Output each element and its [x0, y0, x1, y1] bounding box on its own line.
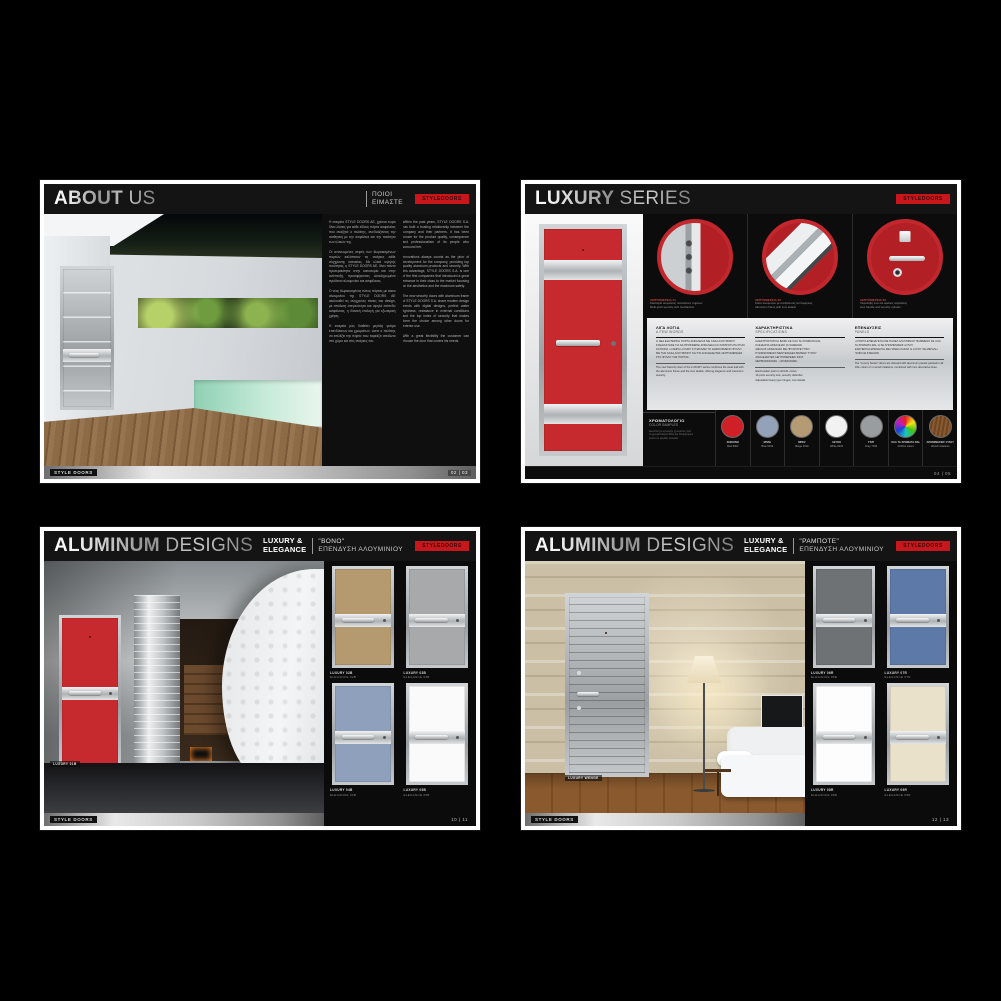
swatch-caption: ΚΟΚΚΙΝΟRed 3002 — [716, 441, 750, 448]
brand-logo: STYLEDOORS — [415, 194, 469, 204]
footer-dark-section: 10 | 11 — [324, 813, 476, 826]
rule — [656, 363, 745, 364]
lock-bolts — [661, 223, 729, 291]
brand-logo: STYLEDOORS — [896, 194, 950, 204]
door-handle — [69, 353, 99, 357]
inox-band — [816, 731, 872, 744]
door-thumbnail: LUXURY 04BELEGANCE 04B — [329, 683, 398, 800]
peephole — [89, 636, 91, 638]
swatch-caption: ΜΠΛΕBlue 5014 — [751, 441, 785, 448]
inox-band-bottom — [544, 404, 622, 424]
red-aluminum-door — [59, 615, 121, 767]
door-slab — [816, 686, 872, 782]
page-content: LUXURY WENGE LUXURY 06RELEGANCE 06R — [525, 561, 957, 813]
side-table-leg — [717, 772, 719, 796]
lock-cylinder — [109, 692, 112, 695]
thumb-door-blue — [332, 683, 394, 785]
luxury-right-column: ΛΕΠΤΟΜΕΡΕΙΑ 01 Κλειδαριά ασφαλείας πολλα… — [643, 214, 957, 466]
door-slab — [569, 597, 645, 773]
thumb-door-cream — [887, 683, 949, 785]
spread-luxury-series[interactable]: LUXURY SERIES STYLEDOORS — [521, 180, 961, 483]
lock-cylinder — [383, 619, 386, 622]
spec-notes: Electrostatic paint in all RAL colors 16… — [755, 370, 844, 383]
thumb-door-darkgrey — [813, 566, 875, 668]
spec-col-specifications: ΧΑΡΑΚΤΗΡΙΣΤΙΚΑ SPECIFICATIONS ΗΛΕΚΤΡΟΣΤΑ… — [755, 325, 844, 405]
detail-cell-frame: ΛΕΠΤΟΜΕΡΕΙΑ 02 Κάσα αλουμινίου με ανοξεί… — [747, 214, 852, 318]
swatch-caption: ΟΛΑ ΤΑ ΧΡΩΜΑΤΑ RALAll RAL colors — [889, 441, 923, 448]
thumbnail-caption: LUXURY 08RELEGANCE 08R — [811, 788, 878, 796]
catalog-canvas: ABOUT US ΠΟΙΟΙ ΕΙΜΑΣΤΕ STYLEDOORS — [0, 0, 1001, 1001]
door-slab — [63, 269, 111, 407]
door-slab — [409, 686, 465, 782]
lock-cylinder — [611, 341, 616, 346]
thumb-label2: ELEGANCE 08R — [811, 793, 878, 797]
color-swatch-beige: ΜΠΕΖBeige 1019 — [784, 410, 819, 466]
page-header: ABOUT US ΠΟΙΟΙ ΕΙΜΑΣΤΕ STYLEDOORS — [44, 184, 476, 214]
door-thumbnail: LUXURY 03BELEGANCE 03B — [403, 566, 472, 683]
page-footer: STYLE DOORS 02 | 03 — [44, 466, 476, 479]
page-title: ABOUT US — [54, 188, 156, 210]
rule — [855, 359, 944, 360]
thumb-label2: ELEGANCE 05B — [404, 793, 471, 797]
color-samples-label: ΧΡΩΜΑΤΟΛΟΓΙΟ COLOR SAMPLES Δυνατότητα επ… — [643, 412, 715, 466]
handle-lever — [889, 256, 925, 261]
about-text-panel: Η εταιρεία STYLE DOORS ΑΕ, χρόνια τώρα δ… — [322, 214, 476, 466]
footer-bar: STYLE DOORS — [525, 813, 805, 826]
thumbnail-caption: LUXURY 05BELEGANCE 05B — [404, 788, 471, 796]
thumb-door-white — [813, 683, 875, 785]
thumb-door-grey — [406, 566, 468, 668]
spec-notes: The "Luxury Series" doors are dressed wi… — [855, 362, 944, 370]
title-light: US — [129, 188, 156, 209]
thumb-label2: ELEGANCE 03B — [404, 675, 471, 679]
page-footer: STYLE DOORS 12 | 13 — [525, 813, 957, 826]
badge-line2: ELEGANCE — [263, 546, 306, 555]
peephole-cover — [900, 231, 911, 242]
footer-bar: STYLE DOORS 02 | 03 — [44, 466, 476, 479]
door-slab — [890, 569, 946, 665]
thumbnail-caption: LUXURY 06RELEGANCE 06R — [811, 671, 878, 679]
lock-cylinder — [864, 736, 867, 739]
thumb-label2: ELEGANCE 09R — [885, 793, 952, 797]
spec-col-words: ΛΙΓΑ ΛΟΓΙΑ A FEW WORDS Η ΝΕΑ ΕΞΩΤΕΡΙΚΗ Π… — [656, 325, 745, 405]
page-header: LUXURY SERIES STYLEDOORS — [525, 184, 957, 214]
spec-panel: ΛΙΓΑ ΛΟΓΙΑ A FEW WORDS Η ΝΕΑ ΕΞΩΤΕΡΙΚΗ Π… — [647, 318, 953, 410]
subtitle-line2: ΕΙΜΑΣΤΕ — [372, 199, 403, 207]
door-handle — [69, 691, 101, 695]
swatch-circle — [756, 415, 779, 438]
detail-caption: ΛΕΠΤΟΜΕΡΕΙΑ 02 Κάσα αλουμινίου με ανοξεί… — [748, 298, 852, 310]
title-strong: ALUMINUM — [535, 535, 641, 556]
color-swatch-wood: ΑΠΟΜΙΜΗΣΕΙΣ ΞΥΛΟΥWood imitations — [922, 410, 957, 466]
swatch-name-en: Blue 5014 — [753, 445, 783, 449]
color-swatch-grey: ΓΚΡΙGrey 7040 — [853, 410, 888, 466]
wood-aluminum-door — [565, 593, 649, 777]
lock-cylinder — [937, 736, 940, 739]
luxury-elegance-badge: LUXURY & ELEGANCE — [744, 537, 787, 554]
title-light: DESIGNS — [646, 535, 734, 556]
door-slab — [335, 686, 391, 782]
title-light: DESIGNS — [165, 535, 253, 556]
inox-band — [816, 614, 872, 627]
spec-heading-en: PANELS — [855, 330, 944, 334]
footer-brand: STYLE DOORS — [50, 469, 97, 476]
thumb-label2: ELEGANCE 02B — [330, 675, 397, 679]
inox-band — [890, 731, 946, 744]
door-thumbnail: LUXURY 02BELEGANCE 02B — [329, 566, 398, 683]
page-number: 02 | 03 — [448, 470, 471, 476]
brand-logo: STYLEDOORS — [896, 541, 950, 551]
inox-band-top — [544, 260, 622, 280]
subtitle-line2: ΕΠΕΝΔΥΣΗ ΑΛΟΥΜΙΝΙΟΥ — [318, 546, 403, 554]
thumb-door-white — [406, 683, 468, 785]
swatch-caption: ΛΕΥΚΟWhite 9016 — [820, 441, 854, 448]
inox-band — [409, 614, 465, 627]
rule — [855, 337, 944, 338]
door-handle — [415, 735, 447, 739]
red-security-door — [539, 224, 627, 456]
swatch-circle — [894, 415, 917, 438]
page-number: 10 | 11 — [448, 817, 471, 823]
detail-circles-row: ΛΕΠΤΟΜΕΡΕΙΑ 01 Κλειδαριά ασφαλείας πολλα… — [643, 214, 957, 318]
subtitle-line1: "ΡΑΜΠΟΤΕ" — [799, 538, 884, 546]
footer-brand: STYLE DOORS — [531, 816, 578, 823]
about-text-english: Within the past years, STYLE DOORS S.A. … — [403, 220, 470, 460]
thumb-label2: ELEGANCE 06R — [811, 675, 878, 679]
color-swatch-white: ΛΕΥΚΟWhite 9016 — [819, 410, 854, 466]
page-content: ΛΕΠΤΟΜΕΡΕΙΑ 01 Κλειδαριά ασφαλείας πολλα… — [525, 214, 957, 466]
thumbnail-caption: LUXURY 04BELEGANCE 04B — [330, 788, 397, 796]
spread-aluminum-rabote[interactable]: ALUMINUM DESIGNS LUXURY & ELEGANCE "ΡΑΜΠ… — [521, 527, 961, 830]
photo-caption: LUXURY 01B — [50, 761, 80, 767]
page-content: Η εταιρεία STYLE DOORS ΑΕ, χρόνια τώρα δ… — [44, 214, 476, 466]
color-swatch-red: ΚΟΚΚΙΝΟRed 3002 — [715, 410, 750, 466]
door-thumbnail: LUXURY 06RELEGANCE 06R — [810, 566, 879, 683]
inox-band — [335, 731, 391, 744]
page-title: LUXURY SERIES — [535, 188, 691, 210]
swatch-name-en: Red 3002 — [718, 445, 748, 449]
door-handle — [415, 618, 447, 622]
door-thumbnails-panel: LUXURY 06RELEGANCE 06R LUXURY 07RELEGANC… — [805, 561, 957, 813]
badge-line2: ELEGANCE — [744, 546, 787, 555]
thumb-door-beige — [332, 566, 394, 668]
handle-detail-photo — [867, 219, 943, 295]
title-strong: ALUMINUM — [54, 535, 160, 556]
detail-line2: Multi-point security lock mechanism — [650, 306, 740, 310]
swatch-caption: ΑΠΟΜΙΜΗΣΕΙΣ ΞΥΛΟΥWood imitations — [923, 441, 957, 448]
page-subtitle: "ΒΟΝΟ" ΕΠΕΝΔΥΣΗ ΑΛΟΥΜΙΝΙΟΥ — [312, 538, 403, 554]
door-slab — [816, 569, 872, 665]
colors-note: Δυνατότητα επιλογής χρώματος από το χρωμ… — [649, 430, 709, 442]
peephole — [582, 249, 584, 251]
page-title: ALUMINUM DESIGNS — [54, 535, 253, 557]
photo-caption: LUXURY WENGE — [565, 775, 602, 781]
lock-rosette — [893, 268, 902, 277]
swatch-circle — [825, 415, 848, 438]
door-thumbnail: LUXURY 05BELEGANCE 05B — [403, 683, 472, 800]
swatch-name-en: Wood imitations — [925, 445, 955, 449]
spec-heading-en: A FEW WORDS — [656, 330, 745, 334]
page-number: 04 | 05 — [934, 471, 951, 476]
page-footer: 04 | 05 — [525, 466, 957, 479]
spread-about-us[interactable]: ABOUT US ΠΟΙΟΙ ΕΙΜΑΣΤΕ STYLEDOORS — [40, 180, 480, 483]
interior-photo: LUXURY 01B — [44, 561, 324, 813]
swatch-name-en: White 9016 — [822, 445, 852, 449]
subtitle-line1: ΠΟΙΟΙ — [372, 191, 403, 199]
page-subtitle: ΠΟΙΟΙ ΕΙΜΑΣΤΕ — [366, 191, 403, 207]
thumbnail-caption: LUXURY 09RELEGANCE 09R — [885, 788, 952, 796]
rule — [755, 367, 844, 368]
door-slab — [409, 569, 465, 665]
garden-window-band — [138, 298, 318, 328]
door-thumbnail: LUXURY 09RELEGANCE 09R — [884, 683, 953, 800]
lock-cylinder — [456, 736, 459, 739]
luxury-elegance-badge: LUXURY & ELEGANCE — [263, 537, 306, 554]
lock-cylinder — [456, 619, 459, 622]
lamp-base — [693, 789, 715, 792]
frame-detail-photo — [762, 219, 838, 295]
sofa-seat — [721, 755, 805, 797]
detail-cell-handle: ΛΕΠΤΟΜΕΡΕΙΑ 03 Χειρολαβή inox και αφαλός… — [852, 214, 957, 318]
door-slab — [62, 618, 118, 764]
door-handle — [342, 618, 374, 622]
inox-band — [890, 614, 946, 627]
spec-col-panels: ΕΠΕΝΔΥΣΕΙΣ PANELS Η ΠΟΡΤΑ ΕΠΕΝΔΥΕΤΑΙ ΜΕ … — [855, 325, 944, 405]
about-text-greek: Η εταιρεία STYLE DOORS ΑΕ, χρόνια τώρα δ… — [329, 220, 396, 460]
spread-aluminum-bono[interactable]: ALUMINUM DESIGNS LUXURY & ELEGANCE "ΒΟΝΟ… — [40, 527, 480, 830]
rule — [755, 337, 844, 338]
lock-detail-photo — [657, 219, 733, 295]
lock-rosette — [577, 671, 581, 675]
title-strong: LUXURY — [535, 188, 614, 209]
swatch-circle — [721, 415, 744, 438]
lamp-pole — [703, 681, 705, 791]
thumb-label2: ELEGANCE 07R — [885, 675, 952, 679]
page-title: ALUMINUM DESIGNS — [535, 535, 734, 557]
title-light: SERIES — [619, 188, 691, 209]
page-subtitle: "ΡΑΜΠΟΤΕ" ΕΠΕΝΔΥΣΗ ΑΛΟΥΜΙΝΙΟΥ — [793, 538, 884, 554]
door-handle — [823, 735, 855, 739]
door-handle — [823, 618, 855, 622]
color-swatch-ral: ΟΛΑ ΤΑ ΧΡΩΜΑΤΑ RALAll RAL colors — [888, 410, 923, 466]
door-handle — [342, 735, 374, 739]
thumbnail-caption: LUXURY 02BELEGANCE 02B — [330, 671, 397, 679]
color-samples-row: ΧΡΩΜΑΤΟΛΟΓΙΟ COLOR SAMPLES Δυνατότητα επ… — [643, 410, 957, 466]
spec-body: Η ΝΕΑ ΕΞΩΤΕΡΙΚΗ ΠΟΡΤΑ ΑΣΦΑΛΕΙΑΣ ΜΕ ΚΑΣΑ … — [656, 340, 745, 361]
door-thumbnail: LUXURY 08RELEGANCE 08R — [810, 683, 879, 800]
thumbnail-caption: LUXURY 07RELEGANCE 07R — [885, 671, 952, 679]
door-thumbnails-panel: LUXURY 02BELEGANCE 02B LUXURY 03BELEGANC… — [324, 561, 476, 813]
detail-line2: Aluminum frame with inox details — [755, 306, 845, 310]
inox-band — [63, 349, 111, 362]
door-slab — [335, 569, 391, 665]
color-swatch-blue: ΜΠΛΕBlue 5014 — [750, 410, 785, 466]
rule — [656, 337, 745, 338]
detail-caption: ΛΕΠΤΟΜΕΡΕΙΑ 01 Κλειδαριά ασφαλείας πολλα… — [643, 298, 747, 310]
red-door-photo — [525, 214, 643, 466]
dark-floor — [44, 763, 324, 813]
peephole — [605, 632, 607, 634]
spec-body: Η ΠΟΡΤΑ ΕΠΕΝΔΥΕΤΑΙ ΜΕ ΠΑΝΕΛ ΑΛΟΥΜΙΝΙΟΥ Β… — [855, 340, 944, 357]
thumbnail-caption: LUXURY 03BELEGANCE 03B — [404, 671, 471, 679]
detail-cell-lock: ΛΕΠΤΟΜΕΡΕΙΑ 01 Κλειδαριά ασφαλείας πολλα… — [643, 214, 747, 318]
swatch-name-en: All RAL colors — [891, 445, 921, 449]
inox-band — [335, 614, 391, 627]
door-handle — [896, 618, 928, 622]
brand-logo: STYLEDOORS — [415, 541, 469, 551]
thumb-door-blue — [887, 566, 949, 668]
lock-cylinder — [383, 736, 386, 739]
footer-bar: STYLE DOORS — [44, 813, 324, 826]
detail-caption: ΛΕΠΤΟΜΕΡΕΙΑ 03 Χειρολαβή inox και αφαλός… — [853, 298, 957, 310]
door-handle — [896, 735, 928, 739]
page-header: ALUMINUM DESIGNS LUXURY & ELEGANCE "ΡΑΜΠ… — [525, 531, 957, 561]
swatch-circle — [860, 415, 883, 438]
spec-heading-en: SPECIFICATIONS — [755, 330, 844, 334]
swatch-caption: ΓΚΡΙGrey 7040 — [854, 441, 888, 448]
wood-entrance-door — [60, 266, 114, 410]
swatch-caption: ΜΠΕΖBeige 1019 — [785, 441, 819, 448]
subtitle-line2: ΕΠΕΝΔΥΣΗ ΑΛΟΥΜΙΝΙΟΥ — [799, 546, 884, 554]
page-footer: STYLE DOORS 10 | 11 — [44, 813, 476, 826]
exterior-photo — [44, 214, 322, 466]
colors-label-en: COLOR SAMPLES — [649, 423, 709, 427]
door-slab — [890, 686, 946, 782]
door-handle — [577, 692, 600, 696]
lock-cylinder — [937, 619, 940, 622]
subtitle-line1: "ΒΟΝΟ" — [318, 538, 403, 546]
footer-brand: STYLE DOORS — [50, 816, 97, 823]
interior-photo: LUXURY WENGE — [525, 561, 805, 813]
swatch-name-en: Beige 1019 — [787, 445, 817, 449]
lock-cylinder — [864, 619, 867, 622]
page-number: 12 | 13 — [929, 817, 952, 823]
page-header: ALUMINUM DESIGNS LUXURY & ELEGANCE "ΒΟΝΟ… — [44, 531, 476, 561]
spec-notes: The new Security door of the LUXURY seri… — [656, 366, 745, 379]
thumb-label2: ELEGANCE 04B — [330, 793, 397, 797]
metallic-column — [134, 595, 180, 769]
title-strong: ABOUT — [54, 188, 123, 209]
door-thumbnail: LUXURY 07RELEGANCE 07R — [884, 566, 953, 683]
detail-line2: Inox handle and security cylinder — [860, 306, 950, 310]
swatch-name-en: Grey 7040 — [856, 445, 886, 449]
page-content: LUXURY 01B LUXURY 02BELEGANCE 02B — [44, 561, 476, 813]
door-slab — [544, 229, 622, 451]
spec-body: ΗΛΕΚΤΡΟΣΤΑΤΙΚΗ ΒΑΦΗ ΣΕ ΟΛΑ ΤΑ ΧΡΩΜΑΤΑ RA… — [755, 340, 844, 365]
fireplace — [190, 747, 212, 761]
footer-dark-section: 12 | 13 — [805, 813, 957, 826]
door-handle — [556, 340, 600, 346]
swatch-circle — [790, 415, 813, 438]
swatch-circle — [929, 415, 952, 438]
cylinder-rosette — [577, 706, 581, 710]
inox-band — [62, 687, 118, 700]
inox-band — [409, 731, 465, 744]
